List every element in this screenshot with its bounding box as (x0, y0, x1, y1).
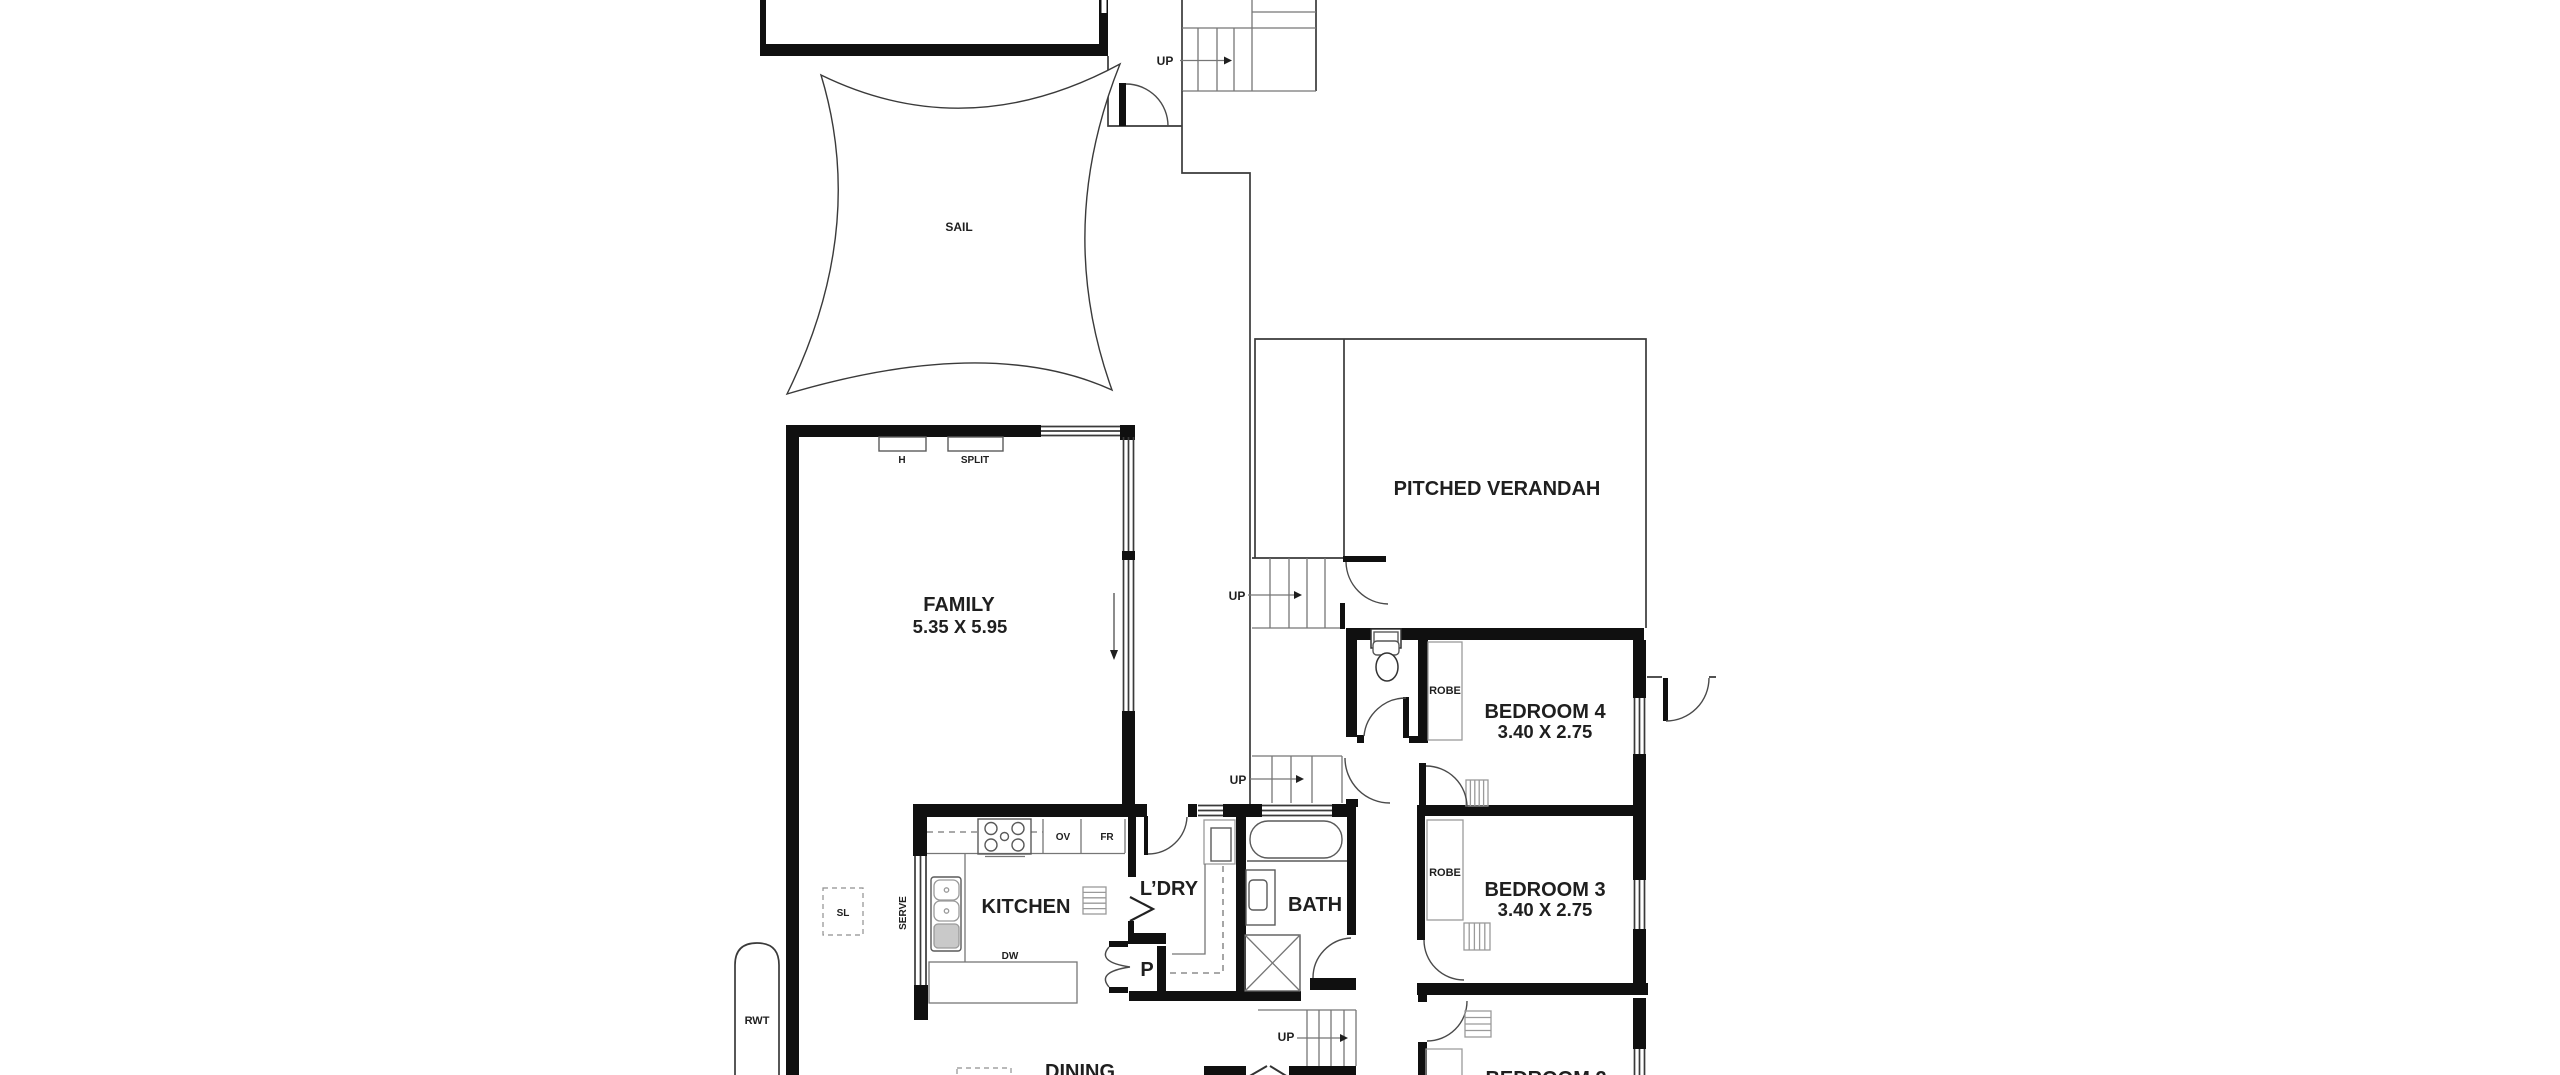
svg-text:BEDROOM 3: BEDROOM 3 (1484, 879, 1605, 901)
svg-text:UP: UP (1229, 589, 1246, 603)
svg-text:SAIL: SAIL (945, 220, 972, 234)
svg-text:3.40 X 2.75: 3.40 X 2.75 (1498, 721, 1593, 742)
svg-text:P: P (1140, 959, 1153, 981)
svg-text:UP: UP (1230, 773, 1247, 787)
svg-text:OV: OV (1056, 832, 1071, 843)
svg-text:UP: UP (1278, 1030, 1295, 1044)
svg-text:BEDROOM 4: BEDROOM 4 (1484, 701, 1606, 723)
svg-text:DW: DW (1002, 951, 1019, 962)
svg-text:L’DRY: L’DRY (1140, 878, 1199, 900)
svg-text:SL: SL (837, 908, 850, 919)
svg-text:BEDROOM 2: BEDROOM 2 (1485, 1068, 1606, 1075)
svg-text:H: H (898, 455, 905, 466)
svg-text:BATH: BATH (1288, 894, 1342, 916)
svg-text:UP: UP (1157, 54, 1174, 68)
svg-text:ROBE: ROBE (1429, 685, 1461, 697)
svg-text:KITCHEN: KITCHEN (982, 896, 1071, 918)
svg-text:3.40 X 2.75: 3.40 X 2.75 (1498, 899, 1593, 920)
svg-text:FAMILY: FAMILY (923, 594, 995, 616)
svg-text:DINING: DINING (1045, 1061, 1115, 1075)
svg-text:ROBE: ROBE (1429, 867, 1461, 879)
svg-text:FR: FR (1100, 832, 1114, 843)
svg-text:SPLIT: SPLIT (961, 455, 989, 466)
svg-text:SERVE: SERVE (898, 896, 909, 930)
svg-text:RWT: RWT (745, 1015, 770, 1027)
svg-text:PITCHED VERANDAH: PITCHED VERANDAH (1394, 478, 1601, 500)
svg-text:5.35 X 5.95: 5.35 X 5.95 (913, 616, 1008, 637)
